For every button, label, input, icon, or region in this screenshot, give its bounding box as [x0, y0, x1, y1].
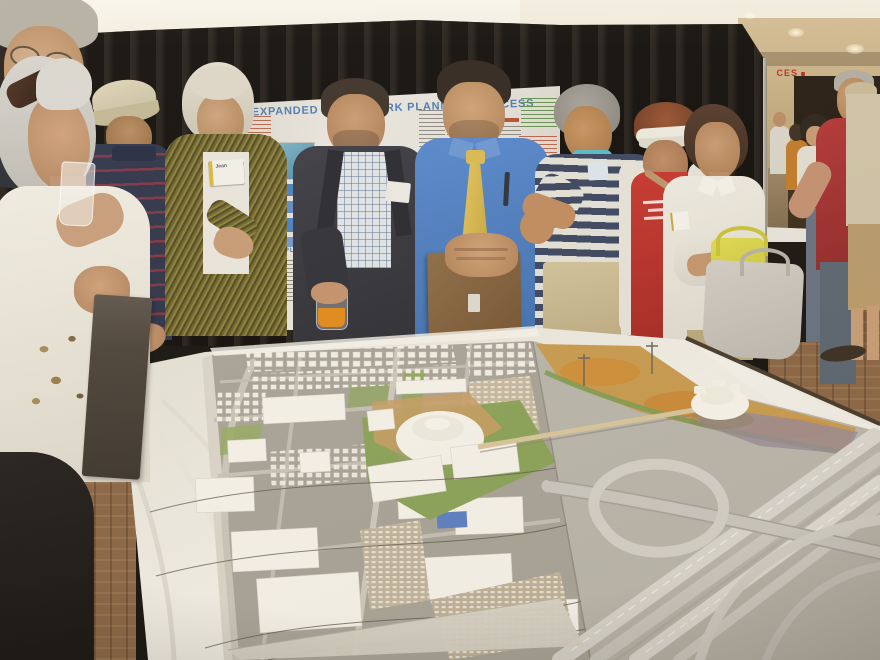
photo-planning-open-house: CES EXPANDED FRAMEWORK PLANNING PROCESS: [0, 0, 880, 660]
left-woman-hair-front: [36, 58, 92, 110]
drinking-glass: [58, 161, 95, 227]
left-woman-pants: [0, 452, 94, 660]
